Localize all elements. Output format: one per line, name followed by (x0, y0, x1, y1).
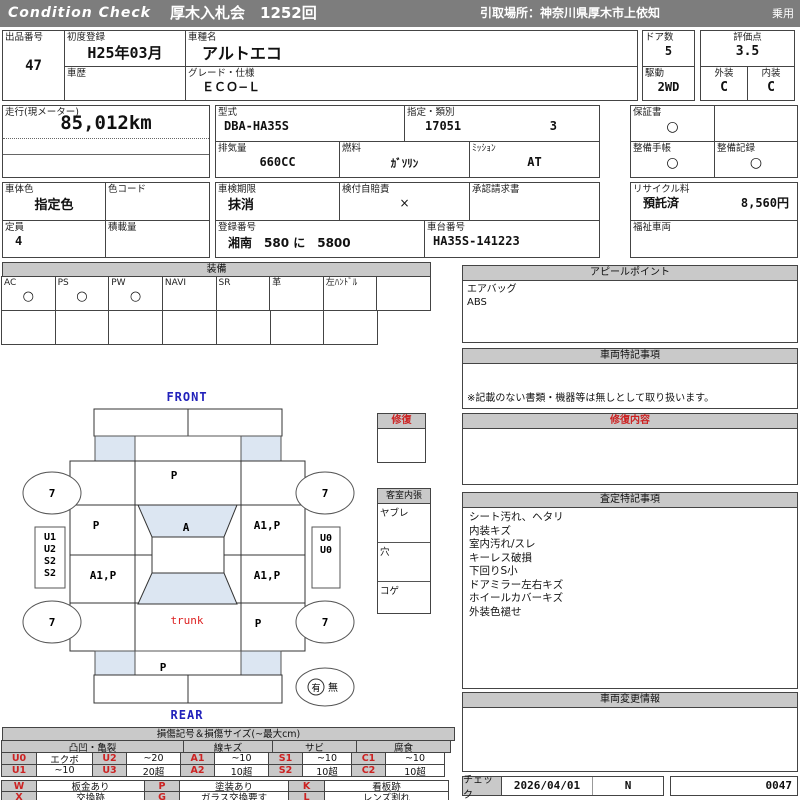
transmission-label: ﾐｯｼｮﾝ (470, 142, 599, 155)
insurance-cell: 検付自賠責 × (339, 182, 470, 221)
assessment-notes-title: 査定特記事項 (463, 493, 797, 508)
lot-number-value: 47 (3, 58, 64, 74)
approval-cell: 承認請求書 (469, 182, 600, 221)
grade-cell: グレード・仕様 ＥＣＯ−Ｌ (185, 66, 638, 101)
doors-cell: ドア数 5 (642, 30, 695, 67)
appeal-points-body: エアバッグ ABS (463, 281, 797, 311)
load-capacity-label: 積載量 (106, 221, 209, 234)
check-number: 0047 (671, 777, 797, 795)
color-code-cell: 色コード (105, 182, 210, 221)
rear-label: REAR (171, 708, 204, 722)
front-label: FRONT (166, 390, 207, 404)
check-date-box: 2026/04/01 N (501, 776, 664, 796)
exterior-grade-value: C (701, 80, 747, 95)
presence-oval (296, 668, 354, 706)
presence-has: 有 (311, 682, 320, 694)
front-right-door-mark: A1,P (254, 519, 281, 532)
cabin-legend-row-burn: コゲ (378, 582, 430, 620)
left-side-mark: S2 (44, 568, 56, 579)
class-cell: 指定・類別 17051 3 (404, 105, 600, 142)
model-code-value: DBA-HA35S (216, 119, 404, 133)
equipment-empty-cell (270, 310, 325, 345)
equipment-empty-cell (216, 310, 271, 345)
equipment-empty-cell (55, 310, 110, 345)
equipment-cell-ps: PS○ (55, 276, 110, 311)
equipment-empty-cell (108, 310, 163, 345)
damage-size: 10超 (385, 764, 445, 777)
left-side-mark: S2 (44, 556, 56, 567)
repair-content-title: 修復内容 (463, 414, 797, 429)
fuel-cell: 燃料 ｶﾞｿﾘﾝ (339, 141, 470, 178)
vehicle-history-cell: 車歴 (64, 66, 186, 101)
maintenance-record-label: 整備記録 (715, 142, 797, 155)
lot-number-label: 出品番号 (3, 31, 64, 44)
chassis-number-value: HA35S-141223 (425, 234, 599, 248)
repair-content-body (463, 429, 797, 433)
brand-logo: Condition Check (8, 0, 151, 27)
equipment-label: SR (217, 277, 270, 290)
front-right-corner (241, 436, 281, 461)
change-info-body (463, 708, 797, 712)
drive-cell: 駆動 2WD (642, 66, 695, 101)
tire-rear-left-depth: 7 (49, 616, 56, 629)
damage-legend-table: 損傷記号＆損傷サイズ(~最大cm) 凸凹・亀裂 線キズ サビ 腐食 U0 エクボ… (2, 727, 455, 800)
registration-number-label: 登録番号 (216, 221, 424, 234)
rear-window (138, 573, 237, 604)
right-side-mark: U0 (320, 545, 332, 556)
damage-code: U1 (1, 764, 37, 777)
model-code-label: 型式 (216, 106, 404, 119)
condition-check-sheet: Condition Check 厚木入札会 1252回 引取場所：神奈川県厚木市… (0, 0, 800, 800)
rear-right-fender-mark: P (255, 617, 262, 630)
roof (152, 537, 224, 573)
maintenance-book-value: ○ (631, 155, 714, 171)
displacement-label: 排気量 (216, 142, 339, 155)
inspection-cell: 車検期限 抹消 (215, 182, 340, 221)
model-code-cell: 型式 DBA-HA35S (215, 105, 405, 142)
mark-desc: ガラス交換要す (179, 791, 289, 800)
repair-content-panel: 修復内容 (462, 413, 798, 485)
body-color-cell: 車体色 指定色 (2, 182, 106, 221)
equipment-value: ○ (109, 289, 162, 304)
check-label: チェック (462, 776, 502, 796)
cabin-legend-row-hole: 穴 (378, 543, 430, 582)
rear-left-door-mark: A1,P (90, 569, 117, 582)
lot-number-cell: 出品番号 47 (2, 30, 65, 101)
chassis-number-label: 車台番号 (425, 221, 599, 234)
equipment-cell-leather: 革 (269, 276, 324, 311)
transmission-cell: ﾐｯｼｮﾝ AT (469, 141, 600, 178)
presence-none: 無 (328, 681, 338, 694)
score-value: 3.5 (701, 44, 794, 59)
assessment-notes-body: シート汚れ、ヘタリ 内装キズ 室内汚れ/スレ キーレス破損 下回りS小 ドアミラ… (463, 508, 797, 622)
repair-legend-title: 修復 (378, 414, 425, 429)
model-name-value: アルトエコ (186, 40, 637, 64)
trunk-label: trunk (170, 614, 203, 627)
header-bar: Condition Check 厚木入札会 1252回 引取場所：神奈川県厚木市… (0, 0, 800, 27)
right-side-mark: U0 (320, 533, 332, 544)
equipment-value: ○ (56, 289, 109, 304)
left-side-mark: U2 (44, 544, 56, 555)
cabin-legend-title: 客室内張 (378, 489, 430, 504)
rear-right-door-mark: A1,P (254, 569, 281, 582)
maintenance-record-cell: 整備記録 ○ (714, 141, 798, 178)
auction-title: 厚木入札会 1252回 (170, 0, 317, 27)
appeal-points-title: アピールポイント (463, 266, 797, 281)
special-notes-title: 車両特記事項 (463, 349, 797, 364)
mark-desc: 交換跡 (36, 791, 145, 800)
transmission-value: AT (470, 155, 599, 169)
equipment-empty-cell (162, 310, 217, 345)
maintenance-book-cell: 整備手帳 ○ (630, 141, 715, 178)
chassis-number-cell: 車台番号 HA35S-141223 (424, 220, 600, 258)
color-code-label: 色コード (106, 183, 209, 196)
grade-value: ＥＣＯ−Ｌ (186, 78, 637, 95)
damage-size: 20超 (126, 764, 181, 777)
registration-number-value: 湘南 580 に 5800 (216, 234, 424, 251)
doors-value: 5 (643, 44, 694, 58)
exterior-grade-label: 外装 (701, 67, 747, 80)
equipment-label: 革 (270, 277, 323, 290)
front-left-corner (95, 436, 135, 461)
warranty-value: ○ (631, 119, 714, 135)
mileage-empty-row (3, 139, 209, 155)
damage-size: ~10 (36, 764, 93, 777)
left-side-mark: U1 (44, 532, 56, 543)
appeal-points-panel: アピールポイント エアバッグ ABS (462, 265, 798, 343)
vehicle-category: 乗用 (772, 0, 794, 27)
displacement-value: 660CC (216, 155, 339, 169)
maintenance-book-label: 整備手帳 (631, 142, 714, 155)
cabin-legend-row-tear: ヤブレ (378, 504, 430, 543)
check-flag: N (592, 777, 663, 795)
class-value-1: 17051 (425, 119, 461, 133)
recycle-fee-value: 8,560円 (741, 194, 789, 211)
tire-front-right-depth: 7 (322, 487, 329, 500)
damage-size: 10超 (214, 764, 269, 777)
fuel-value: ｶﾞｿﾘﾝ (340, 155, 469, 171)
mark-code: L (288, 791, 325, 800)
car-damage-diagram: FRONT REAR 7 7 7 7 (0, 385, 370, 725)
equipment-cell-navi: NAVI (162, 276, 217, 311)
equipment-cell-lhd: 左ﾊﾝﾄﾞﾙ (323, 276, 378, 311)
tire-front-left-depth: 7 (49, 487, 56, 500)
assessment-notes-panel: 査定特記事項 シート汚れ、ヘタリ 内装キズ 室内汚れ/スレ キーレス破損 下回り… (462, 492, 798, 689)
exterior-grade-cell: 外装 C (700, 66, 748, 101)
check-number-box: 0047 (670, 776, 798, 796)
maintenance-record-value: ○ (715, 155, 797, 171)
change-info-title: 車両変更情報 (463, 693, 797, 708)
equipment-label (377, 277, 430, 279)
first-registration-cell: 初度登録 H25年03月 (64, 30, 186, 67)
drive-label: 駆動 (643, 67, 694, 80)
capacity-value: 4 (3, 234, 105, 248)
doors-label: ドア数 (643, 31, 694, 44)
model-name-cell: 車種名 アルトエコ (185, 30, 638, 67)
body-color-value: 指定色 (3, 194, 105, 213)
equipment-label: NAVI (163, 277, 216, 290)
mark-code: G (144, 791, 180, 800)
interior-grade-cell: 内装 C (747, 66, 795, 101)
equipment-table: 装備 AC○ PS○ PW○ NAVI SR 革 左ﾊﾝﾄﾞﾙ (2, 262, 431, 345)
rear-panel-mark: P (160, 661, 167, 674)
recycle-fee-cell: リサイクル料 預託済 8,560円 (630, 182, 798, 221)
capacity-label: 定員 (3, 221, 105, 234)
first-registration-value: H25年03月 (65, 42, 185, 63)
drive-value: 2WD (643, 80, 694, 94)
tire-rear-right-depth: 7 (322, 616, 329, 629)
mileage-cell: 走行(現メーター) 85,012km (2, 105, 210, 178)
front-left-door-mark: P (93, 519, 100, 532)
interior-grade-value: C (748, 80, 794, 95)
fuel-label: 燃料 (340, 142, 469, 155)
load-capacity-cell: 積載量 (105, 220, 210, 258)
class-label: 指定・類別 (405, 106, 599, 119)
welfare-vehicle-cell: 福祉車両 (630, 220, 798, 258)
damage-code: U3 (92, 764, 127, 777)
equipment-cell-sr: SR (216, 276, 271, 311)
capacity-cell: 定員 4 (2, 220, 106, 258)
mark-code: X (1, 791, 37, 800)
registration-number-cell: 登録番号 湘南 580 に 5800 (215, 220, 425, 258)
interior-grade-label: 内装 (748, 67, 794, 80)
insurance-label: 検付自賠責 (340, 183, 469, 196)
special-notes-note: ※記載のない書類・機器等は無しとして取り扱います。 (463, 390, 718, 407)
equipment-cell-extra (376, 276, 431, 311)
rear-right-corner (241, 651, 281, 675)
warranty-label: 保証書 (631, 106, 714, 119)
equipment-cell-pw: PW○ (108, 276, 163, 311)
approval-label: 承認請求書 (470, 183, 599, 196)
score-cell: 評価点 3.5 (700, 30, 795, 67)
rear-left-corner (95, 651, 135, 675)
warranty-cell: 保証書 ○ (630, 105, 715, 142)
mark-desc: レンズ割れ (324, 791, 449, 800)
damage-code: A2 (180, 764, 215, 777)
equipment-empty-cell (323, 310, 378, 345)
docs-blank-cell (714, 105, 798, 142)
score-label: 評価点 (701, 31, 794, 44)
repair-legend-box: 修復 (377, 413, 426, 463)
displacement-cell: 排気量 660CC (215, 141, 340, 178)
change-info-panel: 車両変更情報 (462, 692, 798, 772)
equipment-value: ○ (2, 289, 55, 304)
hood-mark: P (171, 469, 178, 482)
class-value-2: 3 (550, 119, 557, 133)
vehicle-history-label: 車歴 (65, 67, 185, 80)
equipment-cell-ac: AC○ (1, 276, 56, 311)
damage-code: C2 (351, 764, 386, 777)
welfare-vehicle-label: 福祉車両 (631, 221, 797, 234)
recycle-status: 預託済 (643, 194, 679, 211)
pickup-location: 引取場所：神奈川県厚木市上依知 (480, 0, 660, 27)
windshield-mark: A (183, 521, 190, 534)
equipment-empty-cell (1, 310, 56, 345)
equipment-label: 左ﾊﾝﾄﾞﾙ (324, 277, 377, 290)
insurance-value: × (340, 196, 469, 210)
special-notes-panel: 車両特記事項 ※記載のない書類・機器等は無しとして取り扱います。 (462, 348, 798, 409)
damage-size: 10超 (302, 764, 352, 777)
check-date: 2026/04/01 (502, 777, 592, 795)
damage-code: S2 (268, 764, 303, 777)
cabin-legend-box: 客室内張 ヤブレ 穴 コゲ (377, 488, 431, 614)
inspection-value: 抹消 (216, 194, 339, 213)
equipment-title: 装備 (2, 262, 431, 277)
